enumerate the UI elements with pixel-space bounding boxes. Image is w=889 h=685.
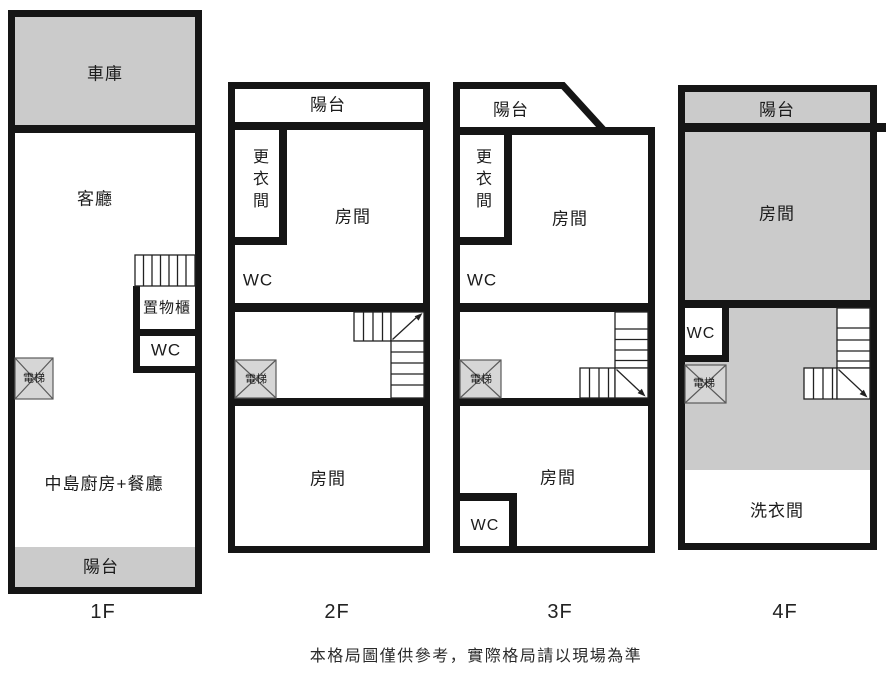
f4-laundry-label: 洗衣間 <box>750 503 804 520</box>
f1-wc-bottom-wall <box>133 366 195 373</box>
f1-garage-wall <box>8 125 202 133</box>
f1-elevator-label: 電梯 <box>23 374 45 385</box>
f1-balcony-label: 陽台 <box>83 559 119 576</box>
f4-room-label: 房間 <box>759 206 795 223</box>
floor-4-tag: 4F <box>772 602 797 622</box>
f1-kitchen-label: 中島廚房+餐廳 <box>45 476 164 493</box>
f2-hall-top-wall <box>228 303 430 312</box>
f3-wc-bottom-label: WC <box>471 518 500 534</box>
f3-dressing-label: 更衣間 <box>473 148 489 214</box>
f2-hall-bottom-wall <box>228 398 430 406</box>
f2-dressing-label: 更衣間 <box>250 148 266 214</box>
f2-balcony-label: 陽台 <box>310 97 346 114</box>
f1-wc-label: WC <box>151 342 181 359</box>
f1-living-label: 客廳 <box>77 191 113 208</box>
f3-hall-bottom-wall <box>453 398 655 406</box>
f3-room-top-label: 房間 <box>552 211 588 228</box>
f1-closet-bottom-wall <box>133 329 195 336</box>
f2-elevator-label: 電梯 <box>245 375 267 386</box>
floorplan-drawing <box>0 0 889 685</box>
f1-stairs <box>135 255 195 286</box>
floor-1-tag: 1F <box>90 602 115 622</box>
f3-column-right-wall <box>504 135 512 245</box>
f4-balcony-wall <box>678 123 886 132</box>
f4-wc-right-wall <box>722 308 729 362</box>
f3-wc2-right-wall <box>509 493 517 553</box>
f2-room-top-label: 房間 <box>335 209 371 226</box>
f3-hall-top-wall <box>453 303 655 312</box>
f2-dressing-bottom-wall <box>235 237 287 245</box>
f1-garage-label: 車庫 <box>87 66 123 83</box>
f4-room-bottom-wall <box>678 300 877 308</box>
floorplan-canvas: 車庫 客廳 置物櫃 WC 電梯 中島廚房+餐廳 陽台 1F 陽台 更衣間 WC … <box>0 0 889 685</box>
floor-3-tag: 3F <box>547 602 572 622</box>
f1-storage-label: 置物櫃 <box>143 301 191 316</box>
f3-room-bottom-label: 房間 <box>540 470 576 487</box>
f2-balcony-wall <box>228 122 430 130</box>
f3-elevator-label: 電梯 <box>470 375 492 386</box>
f3-wc-label: WC <box>467 272 497 289</box>
floor-2-tag: 2F <box>324 602 349 622</box>
f4-balcony-label: 陽台 <box>759 102 795 119</box>
f4-wc-label: WC <box>687 326 716 342</box>
f4-elevator-label: 電梯 <box>693 379 715 390</box>
f2-wc-label: WC <box>243 272 273 289</box>
f3-dressing-bottom-wall <box>460 237 512 245</box>
f2-room-bottom-label: 房間 <box>310 471 346 488</box>
disclaimer-caption: 本格局圖僅供參考，實際格局請以現場為準 <box>310 649 643 665</box>
f3-balcony-label: 陽台 <box>493 102 529 119</box>
f4-wc-bottom-wall <box>685 355 729 362</box>
f2-column-right-wall <box>279 130 287 245</box>
f3-wc2-top-wall <box>453 493 517 501</box>
f3-balcony-wall <box>453 127 655 135</box>
